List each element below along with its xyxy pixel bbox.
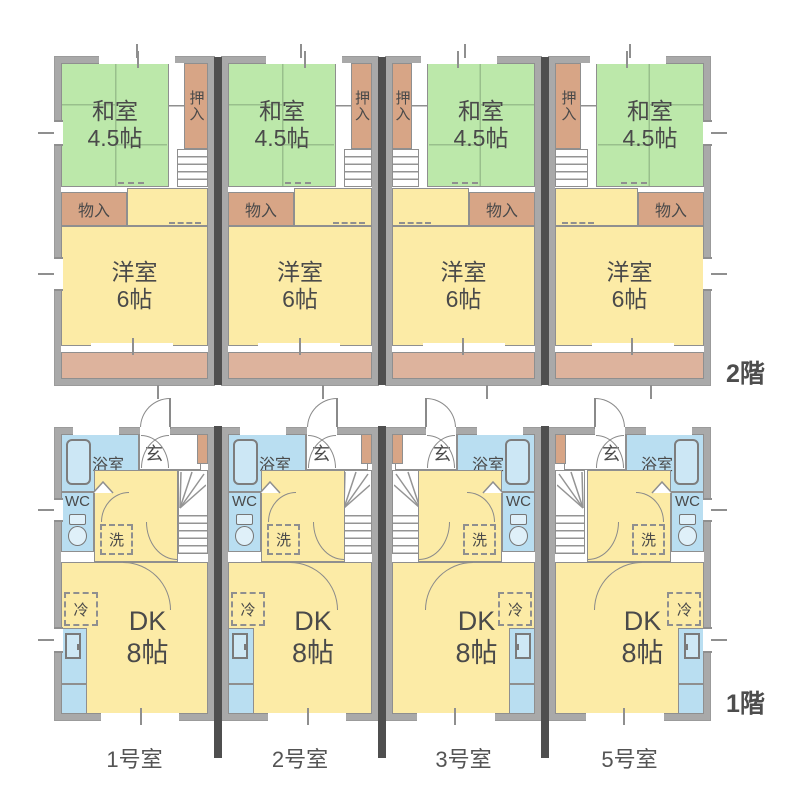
floor-label-2f: 2階 (726, 354, 765, 390)
entrance-step (555, 434, 566, 464)
stairs (344, 149, 372, 187)
room-youshitsu: 洋室 6帖 (61, 226, 208, 346)
room-monoire: 物入 (61, 192, 127, 226)
room-youshitsu-name: 洋室 (277, 259, 323, 286)
unit-1f-3: 浴室 玄 WC 洗 DK 8帖 冷 (386, 428, 541, 720)
toilet-icon (510, 514, 527, 525)
entry-door-arc (140, 398, 170, 428)
dimension-tick (486, 385, 488, 399)
balcony (61, 352, 208, 379)
unit-2f-2: 和室 4.5帖 押入 物入 洋室 6帖 (222, 57, 378, 385)
dimension-tick (711, 509, 727, 511)
bathtub-icon (674, 439, 699, 485)
unit-divider (214, 57, 222, 385)
room-oshiire: 押入 (392, 63, 412, 149)
unit-divider (214, 426, 222, 758)
bathtub-icon (66, 439, 91, 485)
entry-door-opening (140, 427, 170, 435)
room-youshitsu: 洋室 6帖 (555, 226, 704, 346)
window (421, 56, 497, 64)
window (646, 427, 692, 435)
room-dk-name: DK (294, 606, 332, 638)
stairs (342, 470, 372, 554)
washer-space: 洗 (463, 524, 496, 555)
entry-door-leaf (425, 398, 427, 429)
dimension-tick (38, 132, 54, 134)
window (477, 427, 523, 435)
hallway (555, 188, 638, 226)
entry-door-opening (595, 427, 625, 435)
washer-space: 洗 (100, 524, 133, 555)
entrance-step (361, 434, 372, 464)
unit-2f-1: 和室 4.5帖 押入 物入 洋室 6帖 (55, 57, 214, 385)
opening-dash (399, 222, 431, 224)
room-wc-label: WC (229, 493, 260, 510)
room-washitsu-label: 和室 4.5帖 (597, 64, 703, 186)
window (586, 713, 664, 721)
stairs (177, 149, 208, 187)
window (240, 427, 286, 435)
room-youshitsu-size: 6帖 (117, 286, 153, 313)
bath-door-icon (651, 481, 673, 494)
room-wc-label: WC (672, 493, 703, 510)
unit-divider (378, 426, 386, 758)
room-oshiire-label: 押入 (558, 90, 579, 122)
toilet-icon (235, 526, 254, 546)
washer-space-label: 洗 (641, 529, 656, 550)
bath-door-icon (259, 481, 281, 494)
room-entrance-label: 玄 (602, 440, 620, 466)
entry-door-arc (307, 398, 337, 428)
window (423, 343, 505, 351)
unit-divider (378, 57, 386, 385)
window (268, 713, 346, 721)
opening-dash (169, 222, 201, 224)
room-entrance: 玄 (395, 434, 457, 470)
sink-icon (515, 633, 531, 659)
room-monoire-label: 物入 (78, 197, 110, 221)
toilet-icon (678, 526, 697, 546)
room-entrance-label: 玄 (433, 440, 451, 466)
sink-icon (65, 633, 81, 659)
fridge-space: 冷 (231, 592, 265, 626)
dimension-tick (38, 273, 54, 275)
room-monoire: 物入 (228, 192, 294, 226)
unit-1f-4: 浴室 玄 WC 洗 DK 8帖 冷 (549, 428, 710, 720)
room-youshitsu-label: 洋室 6帖 (393, 227, 534, 345)
room-monoire-label: 物入 (486, 197, 518, 221)
room-youshitsu-size: 6帖 (612, 286, 648, 313)
room-washitsu-size: 4.5帖 (88, 125, 143, 152)
dimension-tick (711, 132, 727, 134)
room-wc: WC (228, 492, 261, 552)
bath-door-icon (92, 481, 114, 494)
entrance-step (197, 434, 208, 464)
room-washitsu-label: 和室 4.5帖 (62, 64, 168, 186)
unit-divider (541, 57, 549, 385)
room-oshiire-label: 押入 (392, 90, 413, 122)
window (54, 627, 63, 653)
stairs (392, 149, 419, 187)
washer-space-label: 洗 (109, 529, 124, 550)
room-oshiire-label: 押入 (351, 90, 372, 122)
kitchen-counter (61, 628, 87, 714)
room-dk-size: 8帖 (621, 638, 663, 670)
room-washitsu-label: 和室 4.5帖 (229, 64, 335, 186)
fridge-space-label: 冷 (240, 599, 255, 620)
fridge-space: 冷 (64, 592, 98, 626)
washer-space-label: 洗 (276, 529, 291, 550)
bathtub-icon (233, 439, 258, 485)
room-youshitsu: 洋室 6帖 (228, 226, 372, 346)
entry-door-leaf (594, 398, 596, 429)
window (91, 343, 173, 351)
room-washitsu: 和室 4.5帖 (427, 63, 535, 187)
room-oshiire: 押入 (555, 63, 581, 149)
stairs-winder-icon (394, 471, 421, 509)
sink-icon (232, 633, 248, 659)
dimension-tick (38, 639, 54, 641)
dimension-tick (322, 385, 324, 399)
unit-label-5: 5号室 (549, 744, 710, 772)
window (54, 498, 63, 522)
unit-label-3: 3号室 (386, 744, 541, 772)
stairs-winder-icon (557, 471, 584, 509)
toilet-icon (679, 514, 696, 525)
room-monoire-label: 物入 (245, 197, 277, 221)
entry-door-leaf (336, 398, 338, 429)
dimension-tick (629, 44, 631, 58)
window (266, 56, 342, 64)
room-washitsu: 和室 4.5帖 (61, 63, 169, 187)
entrance-step (392, 434, 403, 464)
window (417, 713, 495, 721)
room-washitsu-name: 和室 (92, 98, 138, 125)
washer-space-label: 洗 (472, 529, 487, 550)
toilet-icon (68, 526, 87, 546)
bathtub-icon (505, 439, 530, 485)
fridge-space: 冷 (667, 592, 701, 626)
room-entrance-label: 玄 (145, 440, 163, 466)
window (54, 257, 63, 291)
unit-2f-4: 和室 4.5帖 押入 物入 洋室 6帖 (549, 57, 710, 385)
room-washitsu-size: 4.5帖 (255, 125, 310, 152)
room-wc: WC (502, 492, 535, 552)
room-youshitsu-name: 洋室 (607, 259, 653, 286)
kitchen-counter (509, 628, 535, 714)
room-oshiire: 押入 (184, 63, 208, 149)
toilet-icon (236, 514, 253, 525)
room-dk-name: DK (129, 606, 167, 638)
window (592, 343, 674, 351)
room-entrance-label: 玄 (312, 440, 330, 466)
window (73, 427, 119, 435)
dimension-tick (711, 273, 727, 275)
room-entrance: 玄 (564, 434, 626, 470)
room-monoire: 物入 (469, 192, 535, 226)
room-monoire: 物入 (638, 192, 704, 226)
room-oshiire: 押入 (351, 63, 372, 149)
floor-plan-canvas: 和室 4.5帖 押入 物入 洋室 6帖 和室 4.5帖 押入 物入 (0, 0, 800, 800)
floor-label-1f: 1階 (726, 684, 765, 720)
stairs-winder-icon (179, 471, 206, 509)
dimension-tick (136, 44, 138, 58)
room-youshitsu-label: 洋室 6帖 (556, 227, 703, 345)
fridge-space-label: 冷 (508, 599, 523, 620)
unit-2f-3: 和室 4.5帖 押入 物入 洋室 6帖 (386, 57, 541, 385)
entry-door-leaf (169, 398, 171, 429)
window (258, 343, 340, 351)
room-dk-size: 8帖 (455, 638, 497, 670)
room-youshitsu-label: 洋室 6帖 (229, 227, 371, 345)
window (590, 56, 666, 64)
dimension-tick (711, 639, 727, 641)
bath-door-icon (482, 481, 504, 494)
balcony (555, 352, 704, 379)
room-washitsu-name: 和室 (627, 98, 673, 125)
hallway (392, 188, 469, 226)
dimension-tick (464, 44, 466, 58)
dimension-tick (157, 385, 159, 399)
hallway (127, 188, 208, 226)
room-dk-size: 8帖 (292, 638, 334, 670)
room-youshitsu-name: 洋室 (441, 259, 487, 286)
toilet-icon (509, 526, 528, 546)
opening-dash (333, 222, 365, 224)
stairs (555, 149, 588, 187)
room-youshitsu-size: 6帖 (282, 286, 318, 313)
room-monoire-label: 物入 (655, 197, 687, 221)
window (101, 713, 179, 721)
unit-label-1: 1号室 (55, 744, 214, 772)
stairs-winder-icon (343, 471, 370, 509)
dimension-tick (300, 44, 302, 58)
window (54, 120, 63, 146)
kitchen-counter (678, 628, 704, 714)
opening-dash (452, 182, 478, 184)
room-youshitsu-name: 洋室 (112, 259, 158, 286)
balcony (392, 352, 535, 379)
room-oshiire-label: 押入 (186, 90, 207, 122)
unit-1f-2: 浴室 玄 WC 洗 DK 8帖 冷 (222, 428, 378, 720)
room-washitsu-label: 和室 4.5帖 (428, 64, 534, 186)
dimension-tick (38, 509, 54, 511)
room-dk-name: DK (624, 606, 662, 638)
room-washitsu-size: 4.5帖 (623, 125, 678, 152)
stairs (178, 470, 208, 554)
fridge-space-label: 冷 (73, 599, 88, 620)
room-youshitsu-size: 6帖 (446, 286, 482, 313)
entry-door-opening (307, 427, 337, 435)
room-dk-name: DK (458, 606, 496, 638)
kitchen-counter (228, 628, 254, 714)
unit-1f-1: 浴室 玄 WC 洗 DK 8帖 冷 (55, 428, 214, 720)
opening-dash (562, 222, 594, 224)
room-entrance: 玄 (139, 434, 201, 470)
room-wc-label: WC (62, 493, 93, 510)
toilet-icon (69, 514, 86, 525)
room-dk-size: 8帖 (126, 638, 168, 670)
room-washitsu-name: 和室 (458, 98, 504, 125)
entry-door-arc (595, 398, 625, 428)
dimension-tick (650, 385, 652, 399)
room-youshitsu: 洋室 6帖 (392, 226, 535, 346)
washer-space: 洗 (267, 524, 300, 555)
fridge-space-label: 冷 (677, 599, 692, 620)
room-wc: WC (61, 492, 94, 552)
room-washitsu: 和室 4.5帖 (228, 63, 336, 187)
opening-dash (621, 182, 647, 184)
hallway (294, 188, 372, 226)
entry-door-arc (426, 398, 456, 428)
unit-label-2: 2号室 (222, 744, 378, 772)
room-washitsu: 和室 4.5帖 (596, 63, 704, 187)
sink-icon (684, 633, 700, 659)
stairs (555, 470, 585, 554)
entry-door-opening (426, 427, 456, 435)
opening-dash (285, 182, 311, 184)
washer-space: 洗 (632, 524, 665, 555)
room-wc: WC (671, 492, 704, 552)
room-entrance: 玄 (306, 434, 368, 470)
opening-dash (118, 182, 144, 184)
room-youshitsu-label: 洋室 6帖 (62, 227, 207, 345)
unit-divider (541, 426, 549, 758)
room-wc-label: WC (503, 493, 534, 510)
room-washitsu-name: 和室 (259, 98, 305, 125)
balcony (228, 352, 372, 379)
fridge-space: 冷 (498, 592, 532, 626)
room-washitsu-size: 4.5帖 (454, 125, 509, 152)
